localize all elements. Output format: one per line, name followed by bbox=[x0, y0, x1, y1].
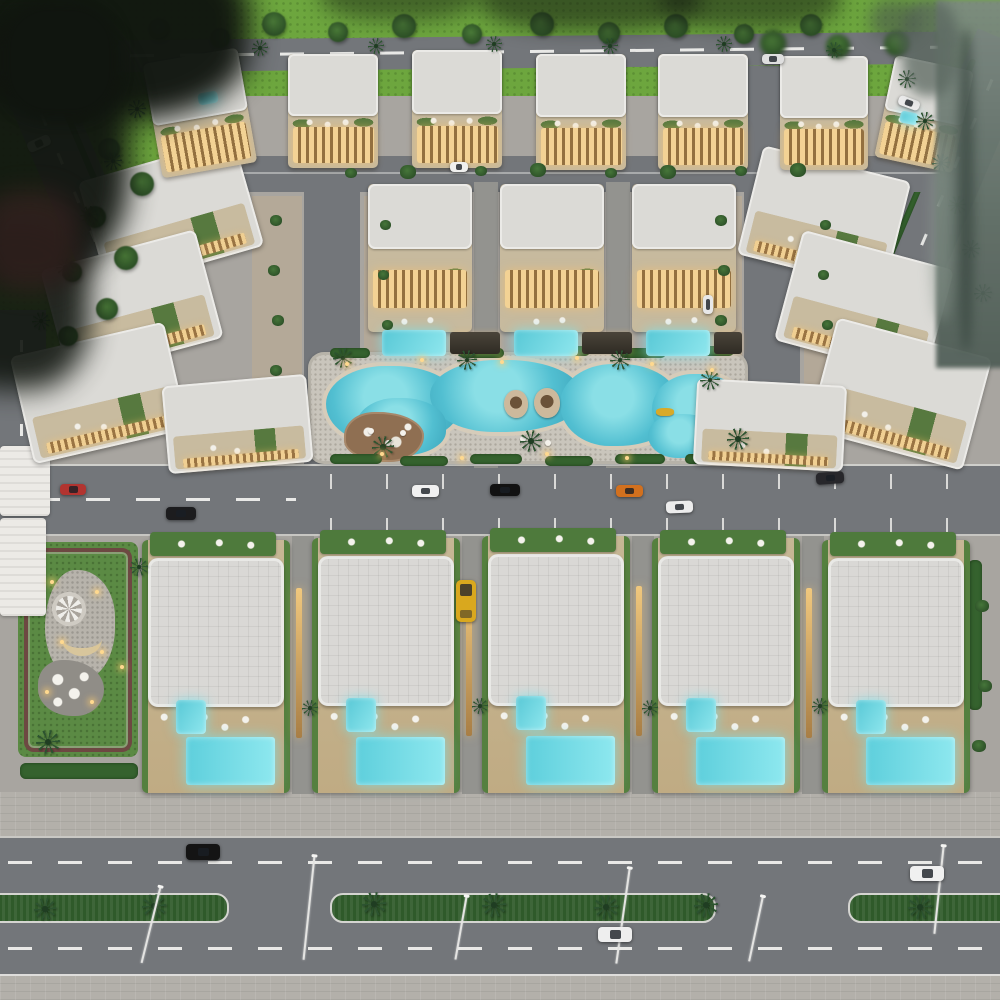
pool-cabana bbox=[504, 390, 528, 418]
villa-mid-row bbox=[368, 184, 472, 332]
villa-mid-row bbox=[500, 184, 604, 332]
villa-bottom-row bbox=[142, 540, 290, 793]
palm-tree bbox=[908, 895, 932, 919]
roof-garden bbox=[830, 532, 956, 556]
shrub bbox=[820, 220, 831, 230]
villa-top-row bbox=[288, 54, 378, 168]
shrub bbox=[715, 215, 727, 226]
palm-tree bbox=[700, 370, 720, 390]
shrub bbox=[718, 265, 730, 276]
deck-lamp bbox=[95, 590, 99, 594]
roof-garden bbox=[320, 530, 446, 554]
palm-tree bbox=[642, 700, 658, 716]
palm-tree bbox=[486, 36, 502, 52]
deck-lamp bbox=[545, 452, 549, 456]
school-bus bbox=[456, 580, 476, 622]
blur-background-right bbox=[870, 0, 920, 40]
villa-top-row bbox=[412, 50, 502, 168]
highway-edge-line bbox=[0, 974, 1000, 976]
black-suv bbox=[166, 507, 196, 520]
villa-bottom-row bbox=[312, 538, 460, 793]
shrub bbox=[660, 165, 676, 179]
pergola bbox=[714, 332, 742, 354]
road-curb bbox=[0, 464, 1000, 466]
rooftop-pool bbox=[646, 330, 710, 356]
palm-tree bbox=[482, 893, 506, 917]
tree-row bbox=[130, 172, 154, 196]
highway-sidewalk bbox=[0, 792, 1000, 838]
palm-tree bbox=[594, 895, 618, 919]
lit-wall bbox=[806, 588, 812, 738]
deck-lamp bbox=[45, 690, 49, 694]
pool-hedge bbox=[470, 454, 522, 464]
palm-tree bbox=[602, 38, 618, 54]
white-sedan bbox=[412, 485, 439, 497]
palm-tree bbox=[727, 428, 749, 450]
shrub bbox=[822, 320, 833, 330]
black-car-right bbox=[816, 471, 845, 485]
pool-hedge bbox=[330, 454, 382, 464]
shrub bbox=[345, 168, 357, 178]
roof-garden bbox=[150, 532, 276, 556]
shrub bbox=[972, 740, 986, 752]
garden-bench bbox=[62, 622, 102, 656]
deck-lamp bbox=[100, 650, 104, 654]
deck-lamp bbox=[420, 358, 424, 362]
spiral-feature bbox=[52, 592, 86, 626]
aerial-development-render bbox=[0, 0, 1000, 1000]
clubhouse bbox=[0, 518, 46, 616]
villa-top-row bbox=[780, 56, 868, 170]
palm-tree bbox=[130, 558, 148, 576]
black-car-highway bbox=[186, 844, 220, 860]
highway-edge-line bbox=[0, 836, 1000, 838]
shrub bbox=[975, 600, 989, 612]
shrub bbox=[530, 163, 546, 177]
shrub bbox=[790, 163, 806, 177]
private-pool-upper bbox=[856, 700, 886, 734]
palm-tree bbox=[520, 430, 542, 452]
orange-sports-car bbox=[616, 485, 643, 497]
tree-row bbox=[114, 246, 138, 270]
private-pool-upper bbox=[686, 698, 716, 732]
shrub bbox=[270, 215, 282, 226]
palm-tree bbox=[716, 36, 732, 52]
palm-tree bbox=[457, 350, 477, 370]
highway-lane-marking bbox=[8, 947, 996, 950]
shrub bbox=[978, 680, 992, 692]
pool-hedge bbox=[400, 456, 448, 466]
white-car-highway-right bbox=[910, 866, 944, 881]
tree-row bbox=[462, 24, 482, 44]
pool-hedge bbox=[20, 763, 138, 779]
shrub bbox=[272, 315, 284, 326]
villa-bottom-row bbox=[652, 538, 800, 793]
water-slide bbox=[656, 408, 674, 416]
tree-row bbox=[262, 12, 286, 36]
pool-hedge bbox=[545, 456, 593, 466]
tree-row bbox=[328, 22, 348, 42]
white-car-highway-lower bbox=[598, 927, 632, 942]
highway-sidewalk bbox=[0, 976, 1000, 1000]
private-pool-upper bbox=[176, 700, 206, 734]
deck-lamp bbox=[50, 580, 54, 584]
deck-lamp bbox=[710, 368, 714, 372]
shrub bbox=[382, 320, 393, 330]
palm-tree bbox=[333, 348, 353, 368]
villa-bottom-row bbox=[482, 536, 630, 793]
deck-lamp bbox=[500, 360, 504, 364]
lit-wall bbox=[636, 586, 642, 736]
palm-tree bbox=[252, 40, 268, 56]
shrub bbox=[378, 270, 389, 280]
palm-tree bbox=[36, 730, 60, 754]
highway-road bbox=[0, 836, 1000, 896]
deck-furniture bbox=[400, 430, 406, 436]
deck-lamp bbox=[575, 356, 579, 360]
shrub bbox=[400, 165, 416, 179]
deck-lamp bbox=[120, 665, 124, 669]
villa-bottom-row bbox=[822, 540, 970, 793]
villa-top-row bbox=[536, 54, 626, 170]
tree-row bbox=[760, 30, 786, 56]
deck-lamp bbox=[90, 700, 94, 704]
tree-row bbox=[96, 298, 118, 320]
palm-tree bbox=[812, 698, 828, 714]
red-sports-car bbox=[60, 484, 86, 495]
shrub bbox=[818, 270, 829, 280]
palm-tree bbox=[34, 898, 56, 920]
pool-hedge bbox=[615, 454, 665, 464]
rooftop-pool bbox=[514, 330, 578, 356]
palm-tree bbox=[610, 350, 630, 370]
central-road-dash bbox=[36, 498, 296, 501]
villa-top-row bbox=[658, 54, 748, 170]
palm-tree bbox=[362, 892, 386, 916]
shrub bbox=[605, 168, 617, 178]
lit-wall bbox=[296, 588, 302, 738]
deck-lamp bbox=[380, 452, 384, 456]
blur-background-right bbox=[930, 140, 952, 320]
shrub bbox=[380, 220, 391, 230]
shrub bbox=[475, 166, 487, 176]
shrub bbox=[735, 166, 747, 176]
private-pool-upper bbox=[346, 698, 376, 732]
black-car bbox=[490, 484, 520, 496]
shrub bbox=[270, 365, 282, 376]
pool-cabana bbox=[534, 388, 560, 418]
palm-tree bbox=[472, 698, 488, 714]
villa-side-left bbox=[161, 374, 313, 474]
deck-furniture bbox=[545, 440, 551, 446]
blur-background-right bbox=[958, 30, 974, 350]
highway-lane-marking bbox=[8, 861, 996, 864]
blur-foreground-dark bbox=[0, 0, 120, 120]
shrub bbox=[715, 315, 727, 326]
white-coupe bbox=[666, 501, 693, 514]
deck-lamp bbox=[650, 362, 654, 366]
deck-lamp bbox=[460, 456, 464, 460]
deck-furniture bbox=[368, 428, 374, 434]
palm-tree bbox=[826, 42, 842, 58]
highway-median bbox=[330, 893, 716, 923]
villa-mid-row bbox=[632, 184, 736, 332]
palm-tree bbox=[694, 893, 718, 917]
palm-tree bbox=[302, 700, 318, 716]
deck-lamp bbox=[60, 640, 64, 644]
roof-garden bbox=[660, 530, 786, 554]
palm-tree bbox=[368, 38, 384, 54]
deck-lamp bbox=[345, 362, 349, 366]
blur-foreground-dark bbox=[0, 190, 80, 290]
pergola bbox=[450, 332, 500, 354]
white-van-driveway bbox=[450, 162, 468, 172]
deck-lamp bbox=[625, 456, 629, 460]
villa-side-right bbox=[693, 378, 847, 472]
white-car-top-road bbox=[762, 54, 784, 64]
shrub bbox=[268, 265, 280, 276]
roof-garden bbox=[490, 528, 616, 552]
private-pool-upper bbox=[516, 696, 546, 730]
palm-tree bbox=[916, 112, 934, 130]
white-car-alley bbox=[703, 295, 713, 314]
rooftop-pool bbox=[382, 330, 446, 356]
